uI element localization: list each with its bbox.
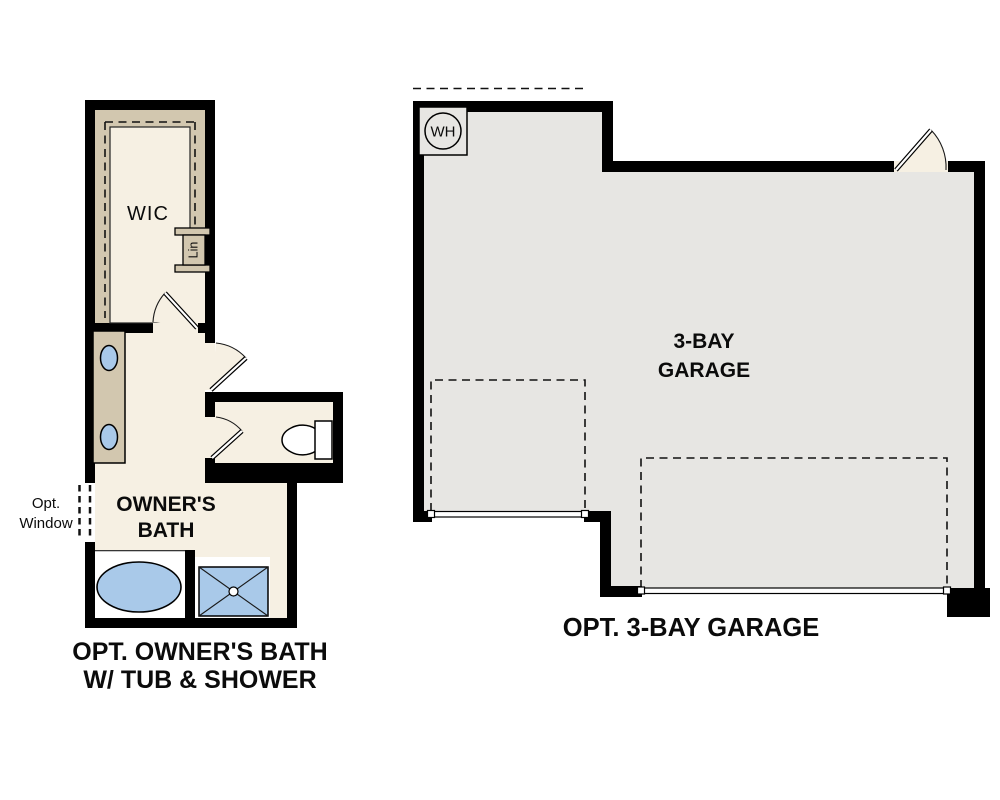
- svg-text:W/ TUB & SHOWER: W/ TUB & SHOWER: [83, 666, 316, 694]
- sink-top: [101, 346, 118, 371]
- linen-shelf-bottom: [175, 265, 210, 272]
- door-jamb: [582, 511, 589, 518]
- tub: [95, 550, 185, 618]
- linen-shelf-top: [175, 228, 210, 235]
- vanity: [93, 331, 125, 463]
- tub-basin: [97, 562, 181, 612]
- single-garage-door: [428, 511, 589, 518]
- linen-label: Lin: [186, 242, 200, 259]
- entry-wall-stub: [205, 333, 215, 343]
- door-jamb: [638, 587, 645, 594]
- bath-entry-door: [211, 343, 246, 390]
- svg-text:GARAGE: GARAGE: [658, 359, 750, 382]
- water-heater: WH: [419, 107, 467, 155]
- garage-caption: OPT. 3-BAY GARAGE: [563, 614, 819, 642]
- sink-bottom: [101, 425, 118, 450]
- left-wall-lower: [85, 540, 95, 628]
- svg-text:Window: Window: [19, 515, 73, 532]
- shower: [195, 557, 270, 618]
- water-heater-label: WH: [431, 124, 456, 141]
- door-jamb: [428, 511, 435, 518]
- wic-floor: [110, 127, 190, 323]
- owners-bath-plan: WIC Lin Opt. Wi: [19, 100, 343, 694]
- double-garage-door: [638, 587, 951, 594]
- optional-window: [76, 483, 95, 542]
- svg-text:Opt.: Opt.: [32, 495, 60, 512]
- garage-plan: WH 3-BAY GARAGE OPT. 3-BAY GARAGE: [413, 89, 990, 643]
- wic-label: WIC: [127, 203, 169, 225]
- bottom-wall: [85, 618, 297, 628]
- floorplan-canvas: WIC Lin Opt. Wi: [0, 0, 1000, 800]
- tub-shower-divider-wall: [185, 550, 195, 618]
- svg-text:3-BAY: 3-BAY: [673, 330, 734, 353]
- right-wall-lower: [287, 478, 297, 628]
- wic-floor-door-area: [188, 272, 205, 323]
- garage-entry-door: [894, 130, 948, 172]
- svg-text:OWNER'S: OWNER'S: [116, 493, 216, 516]
- floorplan-figure: WIC Lin Opt. Wi: [0, 0, 1000, 800]
- shower-drain: [229, 587, 238, 596]
- toilet-bowl: [282, 425, 316, 455]
- bath-caption: OPT. OWNER'S BATH W/ TUB & SHOWER: [72, 638, 327, 694]
- toilet-tank: [315, 421, 332, 459]
- opt-window-label: Opt. Window: [19, 495, 73, 532]
- door-jamb: [944, 587, 951, 594]
- svg-text:OPT. OWNER'S BATH: OPT. OWNER'S BATH: [72, 638, 327, 666]
- svg-text:BATH: BATH: [138, 519, 195, 542]
- toilet-room: [205, 392, 343, 483]
